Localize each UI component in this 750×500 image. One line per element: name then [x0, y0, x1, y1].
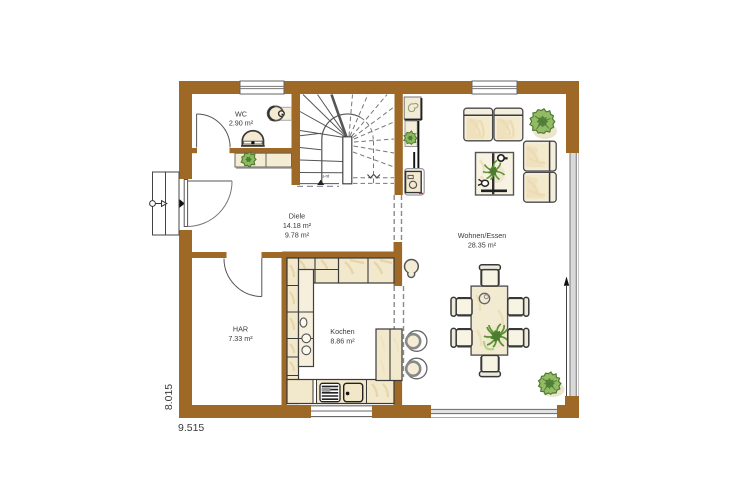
svg-text:8.015: 8.015 — [163, 384, 175, 410]
svg-text:2.90 m²: 2.90 m² — [229, 119, 254, 128]
svg-text:WC: WC — [235, 110, 247, 119]
svg-text:u-nt: u-nt — [322, 174, 331, 179]
svg-text:28.35 m²: 28.35 m² — [468, 240, 497, 249]
svg-text:9.78 m²: 9.78 m² — [285, 230, 310, 239]
svg-text:9.515: 9.515 — [178, 422, 204, 434]
svg-text:14.18 m²: 14.18 m² — [283, 221, 312, 230]
svg-text:8.86 m²: 8.86 m² — [330, 337, 355, 346]
svg-text:7.33 m²: 7.33 m² — [228, 334, 253, 343]
svg-text:HAR: HAR — [233, 325, 248, 334]
svg-text:Wohnen/Essen: Wohnen/Essen — [458, 231, 507, 240]
svg-text:Kochen: Kochen — [330, 327, 354, 336]
svg-text:Diele: Diele — [289, 211, 305, 220]
